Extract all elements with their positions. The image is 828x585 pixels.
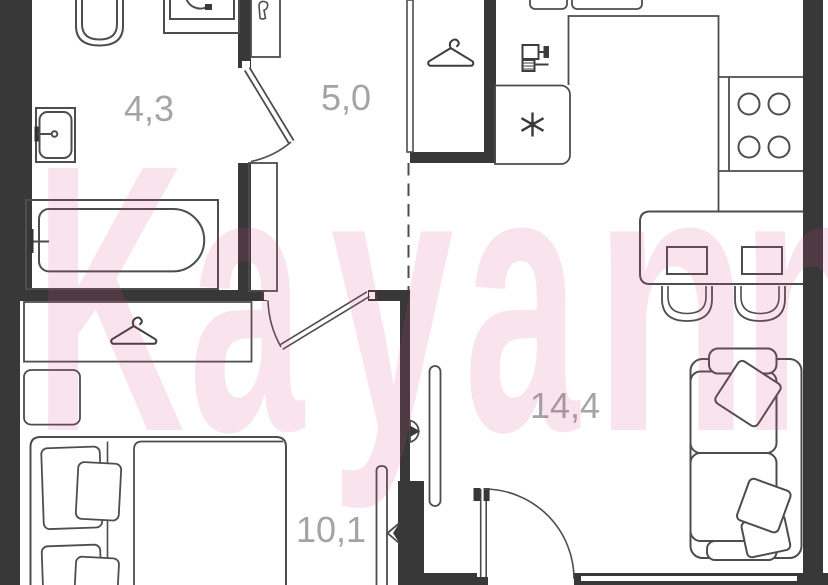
svg-text:a: a [464, 90, 580, 510]
svg-text:10,1: 10,1 [296, 509, 366, 550]
svg-text:K: K [34, 86, 185, 512]
svg-text:n: n [593, 91, 749, 511]
svg-text:n: n [740, 89, 828, 510]
svg-text:a: a [189, 90, 305, 510]
svg-text:y: y [330, 91, 455, 512]
